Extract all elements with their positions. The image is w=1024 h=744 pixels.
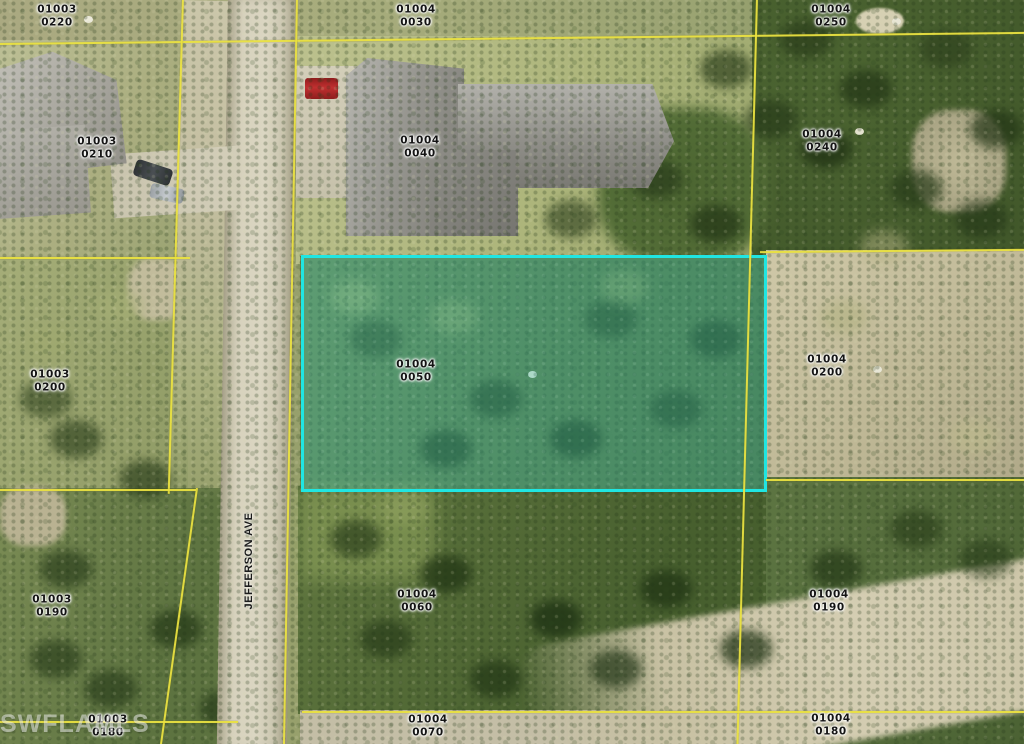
parcel-label-01004-0060: 01004 0060 [397,589,437,614]
parcel-label-01004-0190: 01004 0190 [809,589,849,614]
parcel-label-01003-0200: 01003 0200 [30,369,70,394]
parcel-label-01004-0200: 01004 0200 [807,354,847,379]
highlighted-parcel-outline [301,255,767,492]
parcel-label-01003-0210: 01003 0210 [77,136,117,161]
parcel-boundary-line-west-1 [0,257,190,259]
street-label: JEFFERSON AVE [243,513,255,610]
watermark: SWFLAMLS [0,710,150,739]
parcel-label-01003-0190: 01003 0190 [32,594,72,619]
parcel-label-01003-0220: 01003 0220 [37,4,77,29]
parcel-label-01004-0180: 01004 0180 [811,713,851,738]
parcel-label-01004-0050-subject: 01004 0050 [396,359,436,384]
parcel-label-01004-0030: 01004 0030 [396,4,436,29]
parcel-boundary-line-west-2 [0,489,196,491]
parcel-label-01004-0040: 01004 0040 [400,135,440,160]
parcel-label-01004-0070: 01004 0070 [408,714,448,739]
parcel-label-01004-0250: 01004 0250 [811,4,851,29]
aerial-photo: 01003 0220 01004 0030 01004 0250 01003 0… [0,0,1024,744]
parcel-boundary-line-east-2 [766,479,1024,481]
parcel-label-01004-0240: 01004 0240 [802,129,842,154]
